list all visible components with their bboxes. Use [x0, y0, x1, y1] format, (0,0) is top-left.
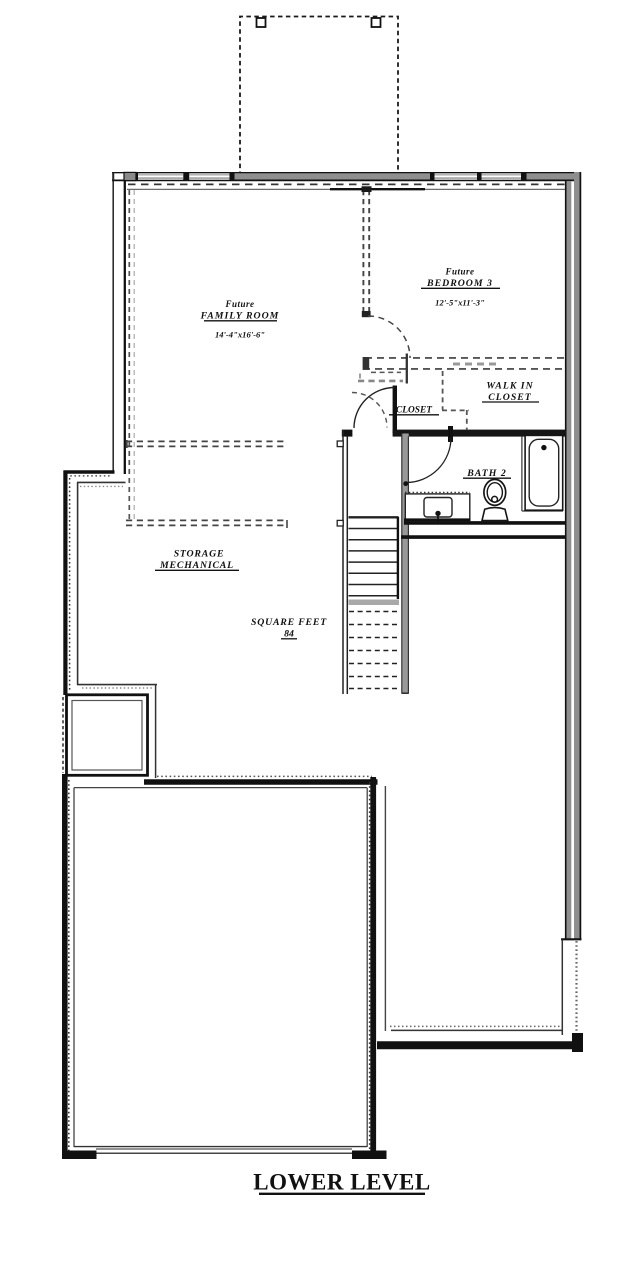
svg-text:BEDROOM 3: BEDROOM 3	[426, 278, 493, 289]
svg-text:SQUARE FEET: SQUARE FEET	[251, 617, 327, 628]
svg-text:FAMILY ROOM: FAMILY ROOM	[200, 311, 280, 322]
svg-text:BATH 2: BATH 2	[466, 468, 506, 479]
svg-text:LOWER LEVEL: LOWER LEVEL	[253, 1170, 430, 1195]
svg-text:12'-5"x11'-3": 12'-5"x11'-3"	[435, 298, 485, 308]
svg-text:MECHANICAL: MECHANICAL	[159, 560, 234, 571]
svg-text:Future: Future	[444, 267, 474, 277]
svg-text:STORAGE: STORAGE	[174, 549, 225, 560]
svg-text:84: 84	[284, 629, 294, 640]
svg-text:CLOSET: CLOSET	[488, 392, 532, 403]
svg-text:WALK IN: WALK IN	[486, 381, 533, 392]
svg-text:14'-4"x16'-6": 14'-4"x16'-6"	[215, 330, 265, 340]
svg-text:Future: Future	[224, 299, 254, 309]
svg-text:CLOSET: CLOSET	[396, 406, 433, 416]
